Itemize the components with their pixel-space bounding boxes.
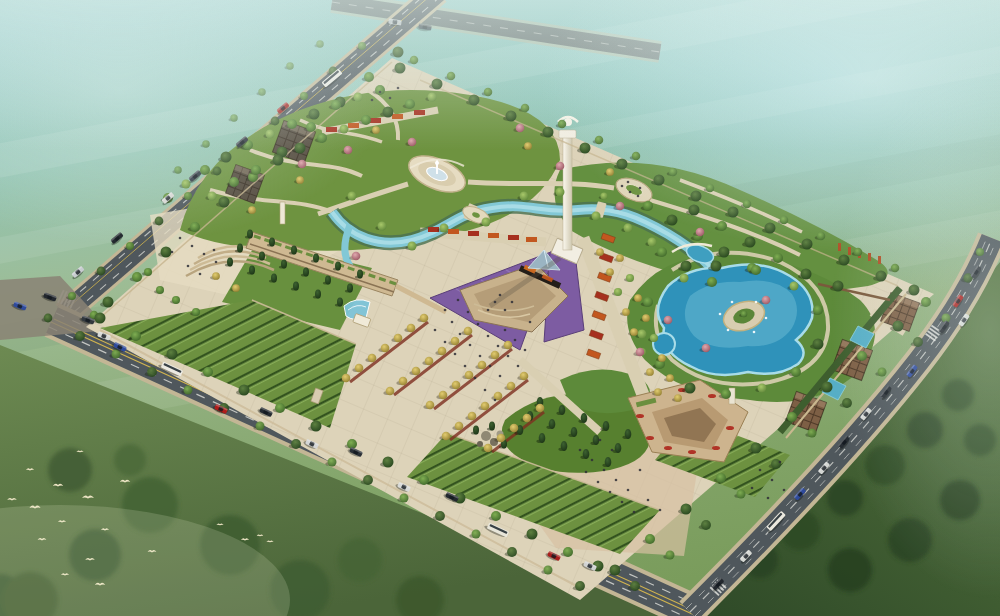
rendering-canvas xyxy=(0,0,1000,616)
aerial-park-rendering xyxy=(0,0,1000,616)
